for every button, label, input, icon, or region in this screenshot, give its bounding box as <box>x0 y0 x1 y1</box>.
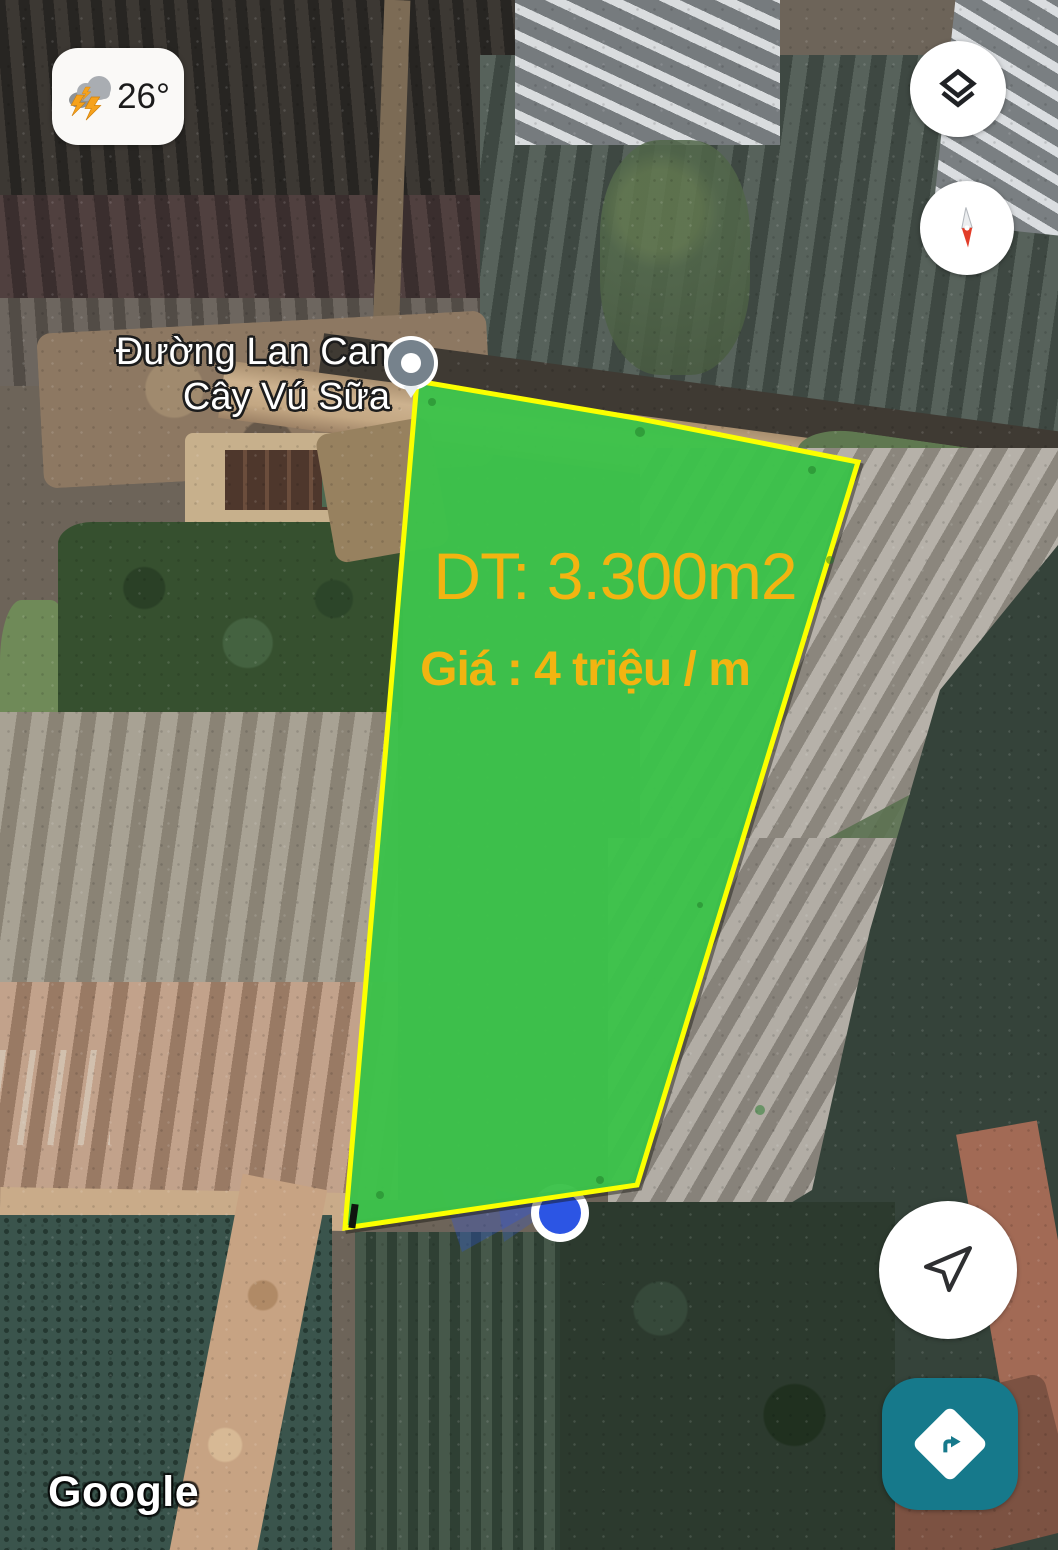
plot-area-text: DT: 3.300m2 <box>395 538 835 614</box>
map-viewport[interactable]: DT: 3.300m2 Giá : 4 triệu / m Đường Lan … <box>0 0 1058 1550</box>
place-label: Đường Lan Can Cây Vú Sữa <box>88 330 390 420</box>
google-logo: Google <box>48 1468 199 1517</box>
terrain-roof-glint <box>0 1050 110 1145</box>
terrain-vegetation-patch <box>600 140 750 375</box>
weather-chip[interactable]: 26° <box>52 48 184 145</box>
layers-button[interactable] <box>910 41 1006 137</box>
place-dot-hole <box>401 353 421 373</box>
storm-lightning-icon <box>60 68 124 124</box>
my-location-button[interactable] <box>879 1201 1017 1339</box>
layers-icon <box>932 63 984 115</box>
place-label-line2: Cây Vú Sữa <box>88 375 390 420</box>
plot-corner-notch <box>348 1204 358 1229</box>
terrain-khaki-greenhouses <box>0 712 398 1004</box>
terrain-white-greenhouses-top <box>515 0 780 145</box>
place-label-line1: Đường Lan Can <box>88 330 390 375</box>
compass-button[interactable] <box>920 181 1014 275</box>
directions-button[interactable] <box>882 1378 1018 1510</box>
plot-price-text: Giá : 4 triệu / m <box>380 642 790 697</box>
temperature-value: 26° <box>117 77 170 117</box>
place-dot-tail <box>403 386 419 398</box>
terrain-forest-bottom <box>560 1202 895 1550</box>
place-dot-icon[interactable] <box>384 336 438 400</box>
turn-right-diamond-icon <box>930 1424 970 1464</box>
send-arrow-icon <box>917 1239 979 1301</box>
terrain-crop-rows-field <box>355 1232 593 1550</box>
compass-needle-icon <box>940 201 995 256</box>
